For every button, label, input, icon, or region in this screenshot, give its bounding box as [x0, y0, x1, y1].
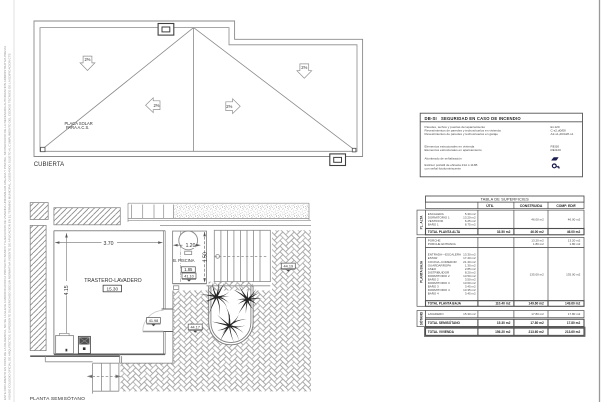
svg-text:3.45 m2: 3.45 m2	[465, 292, 476, 296]
svg-text:149.60 m2: 149.60 m2	[565, 302, 580, 306]
svg-text:BAÑO 4: BAÑO 4	[428, 291, 439, 296]
svg-text:TABLA DE SUPERFICIES: TABLA DE SUPERFICIES	[481, 198, 530, 202]
svg-text:Revestimientos de paredes y te: Revestimientos de paredes y techos/suelo…	[425, 132, 499, 136]
svg-text:2%: 2%	[226, 104, 232, 109]
svg-text:SÓTANO: SÓTANO	[418, 311, 423, 325]
svg-text:44.17: 44.17	[190, 326, 200, 330]
svg-text:46.00 m2: 46.00 m2	[567, 230, 581, 234]
svg-text:ESTE DOCUMENTO ES COPIA DE LA: ESTE DOCUMENTO ES COPIA DE LA DILIGENCIA…	[3, 46, 7, 400]
svg-text:1.80 m2: 1.80 m2	[569, 242, 580, 246]
svg-text:213.60 m2: 213.60 m2	[529, 330, 544, 334]
svg-text:213.60 m2: 213.60 m2	[565, 330, 580, 334]
svg-text:TOTAL PLANTA BAJA: TOTAL PLANTA BAJA	[428, 302, 462, 306]
svg-text:17.80 m2: 17.80 m2	[530, 321, 544, 325]
svg-text:41.98: 41.98	[149, 319, 159, 323]
svg-text:156.20 m2: 156.20 m2	[495, 330, 510, 334]
svg-text:PARA A.C.S.: PARA A.C.S.	[66, 125, 89, 130]
svg-text:B. PISCINA: B. PISCINA	[173, 258, 195, 263]
svg-text:46.00 m2: 46.00 m2	[530, 230, 544, 234]
svg-text:con señal fotoluminiscente: con señal fotoluminiscente	[425, 166, 462, 170]
svg-text:LAVADERO: LAVADERO	[428, 312, 445, 316]
svg-text:3.70: 3.70	[103, 241, 113, 247]
svg-text:VISADO COLEGIO OFICIAL DE ARQU: VISADO COLEGIO OFICIAL DE ARQUITECTOS. E…	[8, 53, 12, 400]
svg-text:COMP. EDIF.: COMP. EDIF.	[556, 204, 576, 208]
svg-text:Elementos estructurales en apa: Elementos estructurales en aparcamiento	[425, 148, 482, 152]
svg-text:TOTAL PLANTA ALTA: TOTAL PLANTA ALTA	[428, 230, 461, 234]
svg-text:REI120: REI120	[551, 148, 562, 152]
svg-text:PLANTA BAJA: PLANTA BAJA	[419, 260, 423, 283]
svg-text:17.80 m2: 17.80 m2	[568, 312, 581, 316]
svg-text:8.75 m2: 8.75 m2	[465, 223, 476, 227]
svg-text:46.00 m2: 46.00 m2	[531, 217, 544, 221]
svg-text:4.15: 4.15	[64, 285, 70, 295]
svg-text:1.85: 1.85	[184, 267, 193, 272]
svg-text:BAÑO 1: BAÑO 1	[428, 222, 439, 227]
svg-text:PL. ALTA: PL. ALTA	[419, 215, 423, 229]
svg-text:ÚTIL: ÚTIL	[486, 203, 494, 208]
svg-text:1.80 m2: 1.80 m2	[533, 242, 544, 246]
svg-text:2%: 2%	[301, 65, 307, 70]
svg-text:TOTAL SEMISÓTANO: TOTAL SEMISÓTANO	[428, 320, 461, 325]
svg-text:135.00 m2: 135.00 m2	[566, 272, 581, 276]
svg-text:17.80 m2: 17.80 m2	[531, 312, 544, 316]
svg-text:41.10: 41.10	[184, 275, 194, 279]
svg-text:CUBIERTA: CUBIERTA	[34, 162, 65, 168]
svg-text:Alumbrado de señalización: Alumbrado de señalización	[425, 156, 462, 160]
svg-text:44.19: 44.19	[284, 265, 294, 269]
svg-text:CONSTRUIDA: CONSTRUIDA	[520, 204, 543, 208]
svg-text:15.30 m2: 15.30 m2	[497, 321, 511, 325]
svg-text:PORCHE ENTRADA: PORCHE ENTRADA	[428, 242, 456, 246]
svg-text:46.00 m2: 46.00 m2	[568, 217, 581, 221]
svg-text:17.80 m2: 17.80 m2	[567, 321, 581, 325]
svg-text:135.00 m2: 135.00 m2	[530, 272, 545, 276]
svg-text:TRASTERO-LAVADERO: TRASTERO-LAVADERO	[84, 278, 141, 284]
svg-text:15.30 m2: 15.30 m2	[463, 312, 476, 316]
svg-text:149.60 m2: 149.60 m2	[529, 302, 544, 306]
svg-text:TOTAL VIVIENDA: TOTAL VIVIENDA	[428, 330, 455, 334]
svg-text:DB-SI SEGURIDAD EN CASO DE I: DB-SI SEGURIDAD EN CASO DE INCENDIO	[425, 116, 522, 121]
svg-text:1.20: 1.20	[186, 243, 196, 249]
svg-text:2%: 2%	[153, 103, 159, 108]
svg-text:A2-s1,d0/A2fl-s1: A2-s1,d0/A2fl-s1	[551, 132, 574, 136]
svg-text:15.30: 15.30	[107, 287, 119, 292]
svg-text:110.40 m2: 110.40 m2	[495, 302, 510, 306]
svg-text:1.50: 1.50	[203, 252, 209, 262]
svg-text:33.50 m2: 33.50 m2	[497, 230, 511, 234]
svg-text:2%: 2%	[84, 57, 90, 62]
svg-text:PLANTA SEMISÓTANO: PLANTA SEMISÓTANO	[30, 395, 85, 402]
